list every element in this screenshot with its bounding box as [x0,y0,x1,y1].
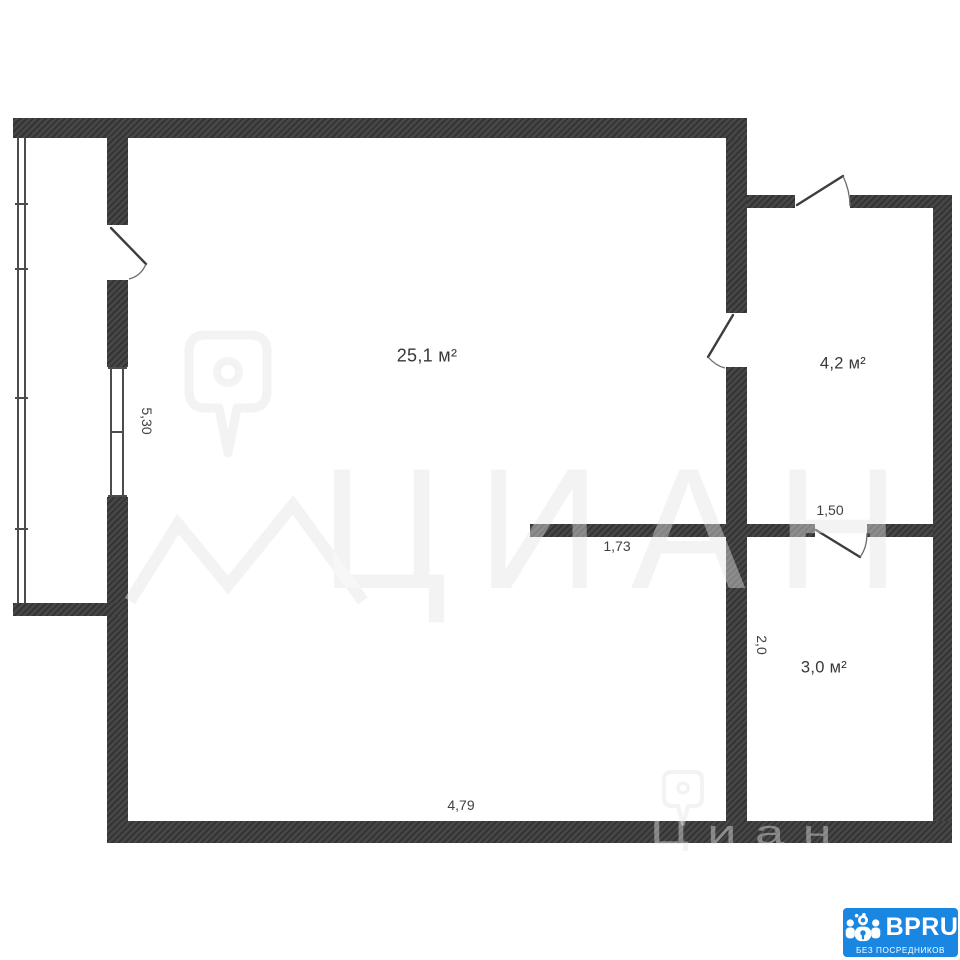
wall-left-mid [107,280,128,367]
cian-pin-small-icon [664,772,702,824]
door-swings-layer [0,0,960,960]
bath-door-arc [860,533,867,557]
wall-hall-top-left [747,195,795,208]
entrance-door-arc [843,176,850,206]
room-area-label-bath: 3,0 м² [801,659,847,678]
room-area-label-main: 25,1 м² [397,346,458,367]
balcony-glazing-tick [15,268,28,270]
cian-pin-icon [189,335,267,453]
balcony-door-arc [129,264,146,279]
balcony-glazing-inner-line [24,138,26,603]
balcony-glazing-tick [15,397,28,399]
wall-right [933,195,952,821]
wall-left-upper [107,138,128,225]
window-tick [110,431,123,433]
dimension-left-vertical: 5,30 [139,407,155,434]
bpru-title: BPRU [886,915,959,940]
bpru-people-icon [843,911,883,944]
wall-mid-right [867,524,933,537]
dimension-hall-width: 1,50 [816,502,843,518]
entrance-door-leaf [797,176,843,205]
dimension-bath-height: 2,0 [754,635,770,654]
wall-left-lower [107,497,128,821]
hall-door-arc [708,357,725,368]
bpru-subtitle: БЕЗ ПОСРЕДНИКОВ [856,946,945,955]
balcony-door-leaf [111,228,146,264]
cian-watermark-over: ЦИАН Циан [0,0,960,960]
balcony-glazing-outer-line [17,138,19,603]
floorplan-canvas: ЦИАН Циан [0,0,960,960]
wall-divider-lower [726,367,747,821]
wall-divider-upper [726,138,747,313]
wall-top [13,118,747,138]
dimension-partition: 1,73 [603,538,630,554]
bath-door-leaf [816,530,860,557]
window-cap-top [108,367,127,369]
balcony-glazing-tick [15,528,28,530]
window-cap-bottom [108,495,127,497]
cian-zigzag-icon [130,505,363,601]
wall-mid-left [747,524,815,537]
hall-door-leaf [708,315,733,357]
bpru-brand-badge: BPRU БЕЗ ПОСРЕДНИКОВ [843,908,958,957]
room-area-label-hall: 4,2 м² [820,355,866,374]
dimension-bottom-width: 4,79 [447,797,474,813]
wall-balcony-bottom [13,603,128,616]
wall-bottom [107,821,952,843]
balcony-glazing-tick [15,203,28,205]
cian-watermark-under: ЦИАН Циан [0,0,960,960]
wall-partition [530,524,726,537]
